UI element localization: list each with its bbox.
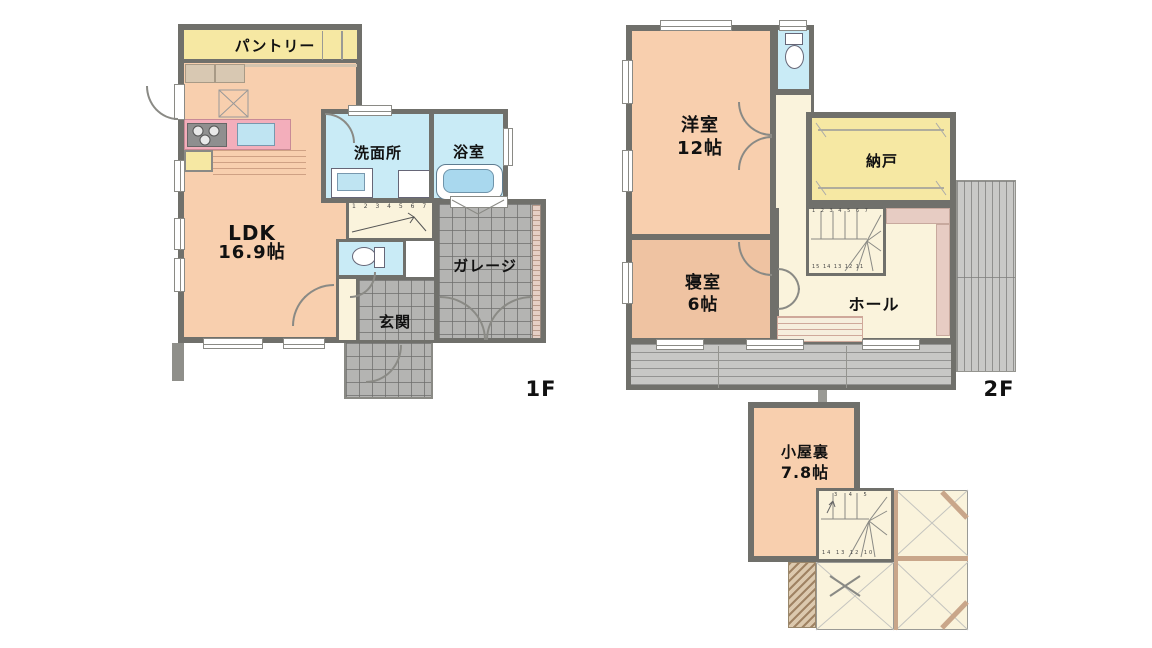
bedroom-size-label: 6帖 bbox=[643, 296, 763, 316]
window bbox=[660, 20, 732, 31]
bedroom-name-label: 寝室 bbox=[643, 274, 763, 294]
stairs-attic-numbers-bottom: 14 13 12 10 bbox=[822, 550, 874, 556]
balcony-2f bbox=[626, 344, 956, 390]
window bbox=[622, 150, 633, 192]
stairs-attic-numbers-top: 3 4 5 bbox=[834, 492, 872, 498]
window bbox=[174, 160, 185, 192]
toilet-bowl-1f bbox=[352, 247, 376, 266]
stove-burners bbox=[187, 123, 227, 147]
window bbox=[203, 338, 263, 349]
catwalk-right bbox=[936, 224, 950, 336]
window bbox=[746, 339, 804, 350]
balcony-divider bbox=[846, 346, 847, 388]
entrance-label: 玄関 bbox=[355, 314, 435, 331]
kitchen-cabinet bbox=[185, 64, 215, 83]
toilet-tank-2f bbox=[785, 33, 803, 45]
stairs-2f-numbers-top: 1 2 3 4 5 6 7 bbox=[812, 208, 870, 214]
window bbox=[622, 262, 633, 304]
kitchen-side-cabinet bbox=[184, 150, 213, 172]
window bbox=[862, 339, 920, 350]
ldk-size-label: 16.9帖 bbox=[192, 243, 312, 264]
pantry-label: パントリー bbox=[205, 38, 345, 55]
attic-size-label: 7.8帖 bbox=[757, 464, 853, 482]
kitchen-sink bbox=[237, 123, 275, 146]
kitchen-cabinet bbox=[215, 64, 245, 83]
stairs-2f-numbers-bottom: 15 14 13 12 11 bbox=[812, 264, 864, 270]
storage-hanger-pipes bbox=[812, 118, 950, 200]
stairs-1f-arrow bbox=[348, 205, 432, 238]
wash-basin-bowl bbox=[337, 173, 365, 191]
porch-wall-stub bbox=[172, 343, 184, 381]
kitchen-table bbox=[213, 150, 306, 175]
attic-hatch-area bbox=[788, 562, 816, 628]
attic-name-label: 小屋裏 bbox=[757, 444, 853, 461]
attic-roof-right-beams bbox=[894, 490, 968, 630]
window bbox=[622, 60, 633, 104]
window bbox=[283, 338, 325, 349]
bathtub-water bbox=[443, 169, 494, 193]
ceiling-hatch-icon bbox=[218, 89, 249, 118]
window bbox=[779, 20, 807, 31]
catwalk-top bbox=[886, 208, 950, 224]
window bbox=[656, 339, 704, 350]
floor-plan-canvas: パントリー LDK 16.9帖 洗面所 浴室 1 2 3 4 5 6 7 玄関 bbox=[0, 0, 1152, 648]
roof-terrace-2f bbox=[956, 180, 1016, 372]
window bbox=[174, 218, 185, 250]
kitchen-shelf-line bbox=[245, 64, 357, 67]
window bbox=[174, 258, 185, 292]
bath-label: 浴室 bbox=[429, 144, 509, 161]
washroom-label: 洗面所 bbox=[338, 145, 418, 162]
front-entry-door-swing bbox=[146, 86, 178, 120]
hall-label: ホール bbox=[834, 296, 914, 314]
stairs-attic-winder bbox=[819, 491, 891, 559]
balcony-divider bbox=[718, 346, 719, 388]
attic-roof-lower-brace bbox=[816, 562, 894, 630]
floor1-label: 1F bbox=[518, 377, 564, 401]
bath-window bbox=[503, 128, 513, 166]
toilet-tank-1f bbox=[374, 247, 385, 268]
window bbox=[348, 105, 392, 116]
garage-label: ガレージ bbox=[430, 258, 540, 275]
toilet-bowl-2f bbox=[785, 45, 804, 69]
washer-space bbox=[398, 170, 430, 198]
floor2-label: 2F bbox=[976, 377, 1022, 401]
garage-door-swing bbox=[450, 198, 506, 216]
garage-shutter-door bbox=[532, 205, 541, 338]
